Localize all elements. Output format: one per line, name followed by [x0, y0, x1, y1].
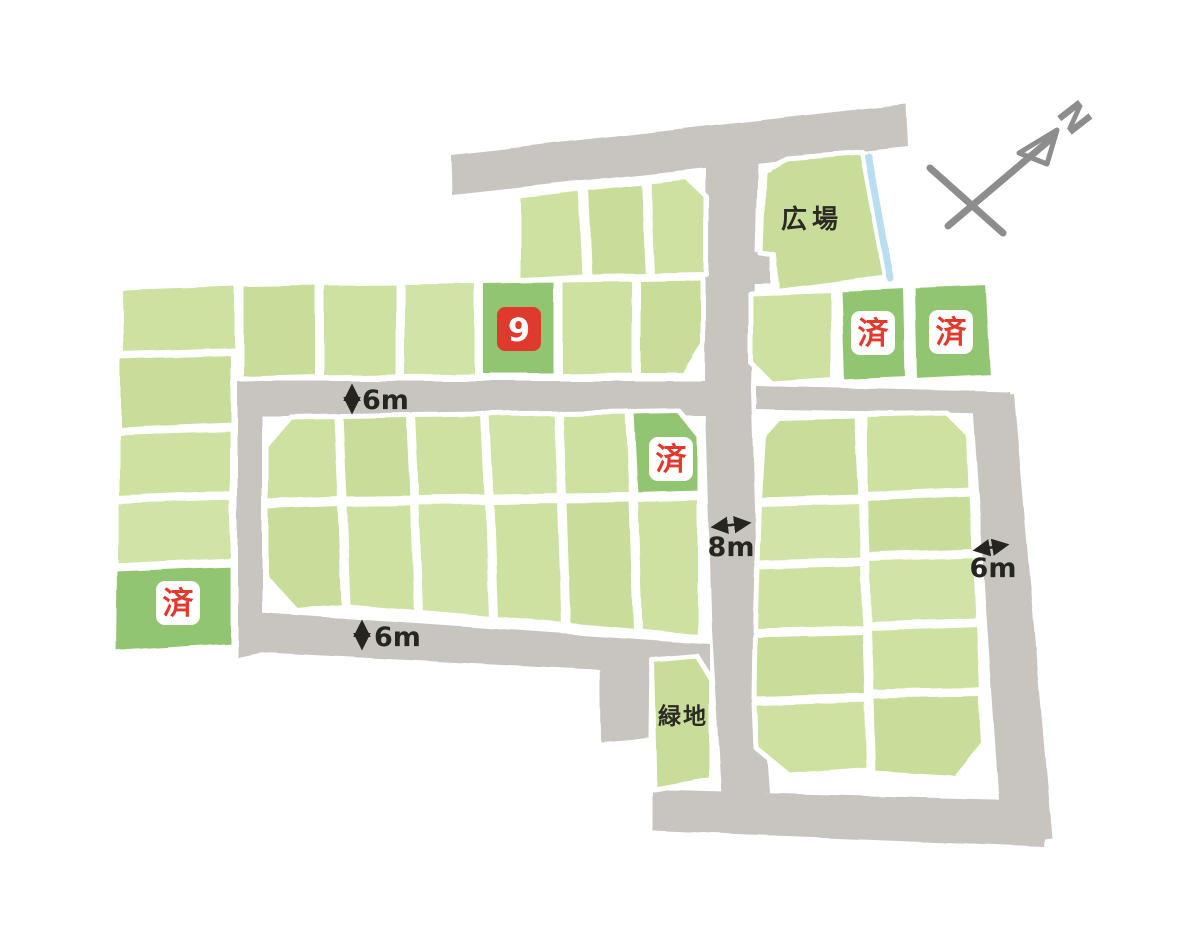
plot-right-r3c1	[755, 564, 865, 631]
green-space-label: 緑地	[658, 703, 708, 730]
plot-leftcol-3	[116, 498, 232, 566]
road-bump	[750, 252, 770, 283]
dimension-label: 6m	[374, 622, 421, 653]
plot-toprow-3	[322, 282, 398, 378]
plot-topmid-1	[518, 189, 585, 281]
dimension-label: 6m	[362, 385, 409, 416]
plaza-label: 広場	[781, 204, 843, 235]
sold-label: 済	[163, 586, 195, 622]
sold-badge-west: 済	[156, 581, 200, 625]
plot-mid-r1c1	[266, 416, 340, 502]
plot-leftcol-1	[118, 353, 233, 429]
plot-mid-r1c3	[413, 414, 487, 498]
dimension-label: 8m	[708, 532, 755, 563]
plot-topmid-3	[648, 177, 707, 276]
plot-toprow-6	[560, 279, 634, 376]
dimension-label: 6m	[970, 553, 1017, 584]
plot-mid-r2c2	[344, 503, 417, 613]
plot-toprow-2	[241, 283, 318, 379]
plot-mid-r2c3	[417, 502, 491, 619]
sold-badge-middle: 済	[649, 437, 693, 481]
plot-right-r4c1	[754, 632, 867, 699]
featured-plot-badge: 9	[497, 307, 541, 351]
compass: N	[930, 94, 1099, 233]
sold-label: 済	[858, 316, 890, 352]
plot-right-r2c1	[757, 501, 863, 563]
plot-topmid-2	[586, 182, 648, 277]
road-bottom-diagonal	[653, 790, 1048, 847]
site-plan-map: 広場 緑地 9 済 済 済 済 6m 6m	[0, 0, 1200, 938]
plot-right-r2c2	[865, 493, 974, 555]
plot-mid-r2c4	[491, 501, 564, 625]
plot-netop-1	[750, 290, 833, 384]
plot-toprow-1	[120, 284, 237, 354]
road-greenspace-strip	[600, 648, 650, 742]
plot-mid-r2c1	[266, 504, 344, 611]
plot-right-r3c2	[867, 555, 978, 624]
plot-right-r4c2	[869, 624, 982, 692]
plot-mid-r1c5	[560, 412, 632, 496]
plot-right-r1c2	[865, 413, 970, 494]
compass-cross	[930, 168, 1003, 233]
plot-mid-r1c4	[487, 413, 560, 497]
road-east-vertical	[972, 394, 1052, 845]
featured-plot-number: 9	[508, 311, 530, 349]
compass-shaft	[948, 138, 1052, 226]
plot-mid-r2c5	[564, 500, 636, 631]
plot-right-r5c2	[871, 694, 984, 778]
plot-leftcol-2	[117, 428, 232, 499]
plot-mid-r2c6	[636, 498, 700, 637]
sold-badge-ne-2: 済	[929, 310, 973, 354]
sold-label: 済	[936, 315, 968, 351]
sold-badge-ne-1: 済	[851, 311, 895, 355]
plot-toprow-4	[402, 281, 477, 377]
plot-mid-r1c2	[340, 415, 413, 499]
plot-right-r1c1	[759, 416, 861, 500]
plot-right-r5c1	[754, 700, 869, 776]
plot-toprow-7	[638, 278, 703, 375]
sold-label: 済	[656, 442, 688, 478]
